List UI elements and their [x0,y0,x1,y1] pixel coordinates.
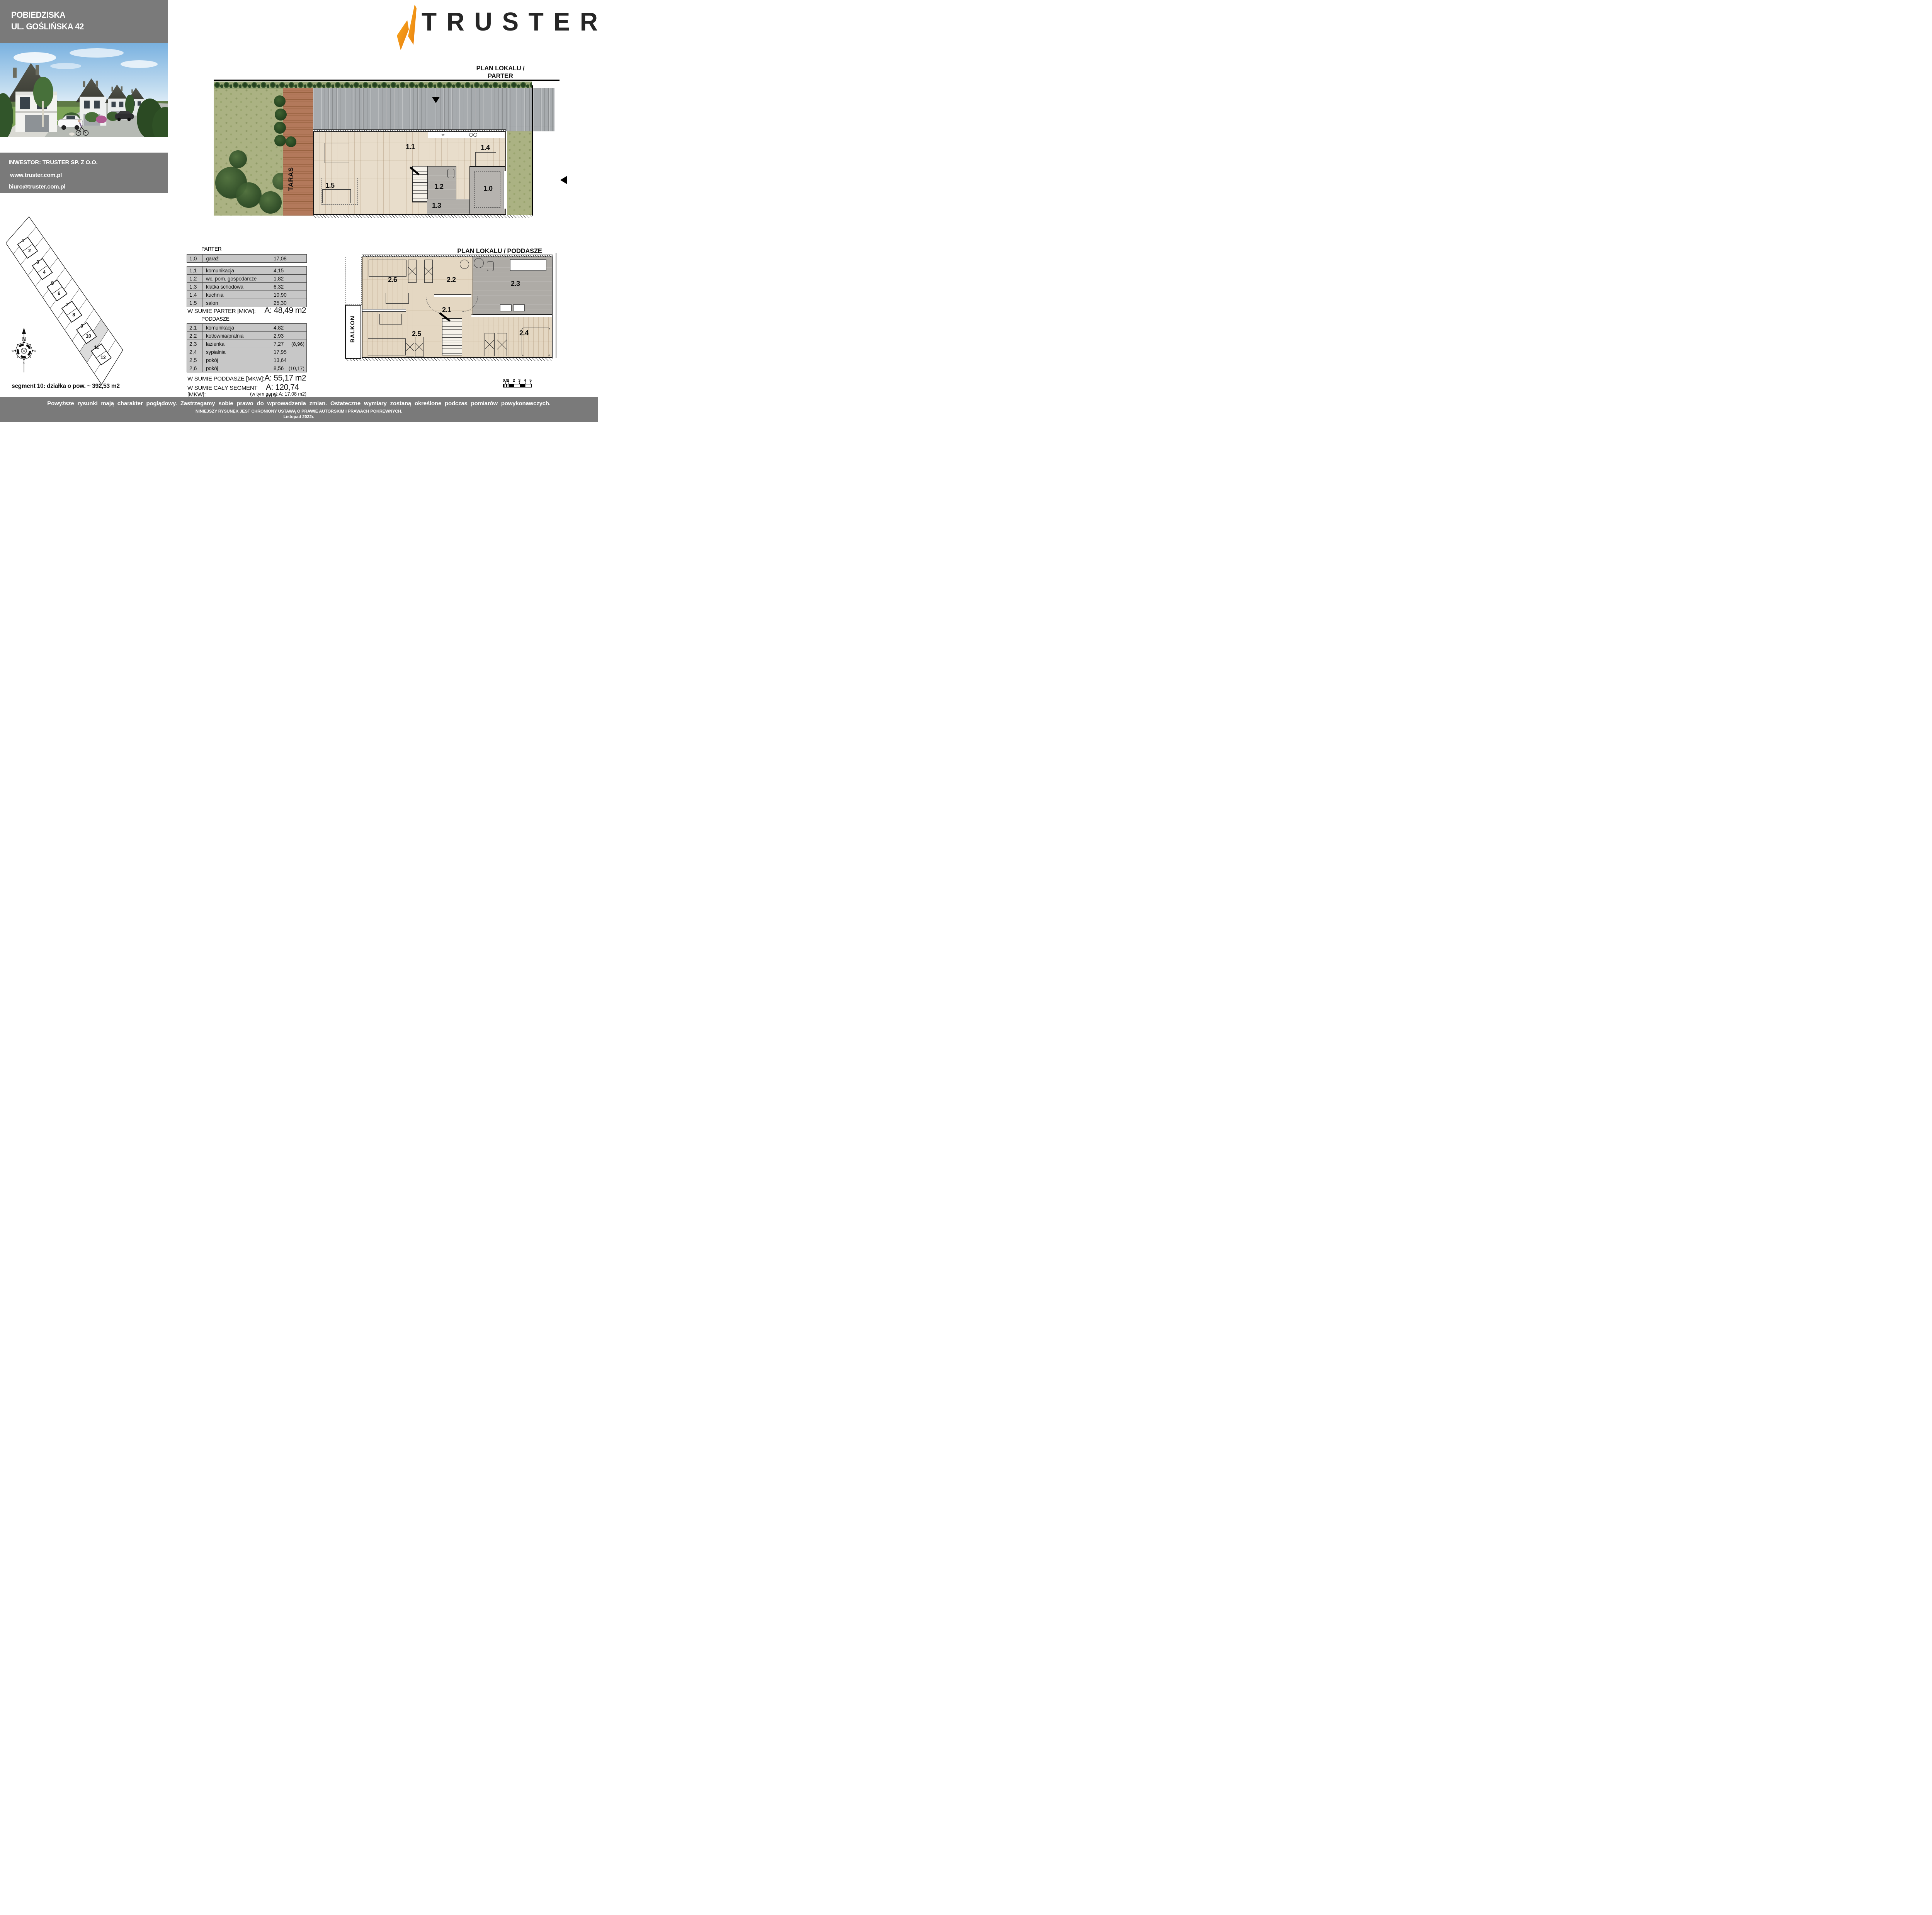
brand-letter: U [474,10,492,34]
row-label: sypialnia [202,349,270,355]
row-id: 1,1 [187,267,202,274]
table-row: 2,1komunikacja4,82 [187,324,306,332]
bathtub [510,259,546,271]
flower-bush [96,116,107,123]
row-label: salon [202,300,270,306]
plot-number: 4 [43,270,46,275]
room-label-26: 2.6 [388,276,397,284]
parter-table: 1,1komunikacja4,151,2wc, pom. gospodarcz… [187,266,307,307]
side-lawn [507,131,532,215]
scale-tick [531,382,531,384]
room-label-klatka: 1.3 [432,202,441,210]
poddasze-sum-value: A: 55,17 m2 [264,374,306,383]
tree-blob [259,191,282,214]
entrance-arrow-icon [432,97,440,103]
svg-text:W: W [12,350,14,353]
door-swing [426,296,443,313]
boundary-line [556,253,556,358]
site-plan: 123456789101112 N W E S [6,215,178,389]
table-row: 1,0garaż17,08 [187,255,306,262]
svg-text:S: S [23,362,25,364]
plan-poddasze-drawing: BALKON 2.6 2.5 2.2 2.1 [345,253,561,365]
poddasze-sum: W SUMIE PODDASZE [MKW]: A: 55,17 m2 [187,374,306,383]
row-label: łazienka [202,341,270,347]
plot-number: 11 [94,345,99,350]
row-label: wc, pom. gospodarcze [202,276,270,282]
brand-letter: T [529,10,544,34]
garage-door [503,171,507,209]
tree-blob [229,150,247,168]
plot-number: 10 [86,333,91,339]
scale-tick [525,382,526,384]
table-row: 1,1komunikacja4,15 [187,267,306,275]
row-id: 1,2 [187,275,202,282]
parter-sum: W SUMIE PARTER [MKW]: A: 48,49 m2 [187,306,306,315]
neighbour-paving [533,88,554,131]
row-id: 2,3 [187,340,202,348]
room-label-salon: 1.5 [325,182,335,190]
row-label: komunikacja [202,325,270,331]
plot-number: 3 [36,260,39,265]
compass-rose: N W E S [12,328,36,372]
parter-sum-label: W SUMIE PARTER [MKW]: [187,308,255,314]
row-id: 1,3 [187,283,202,291]
vent-icon: ✳ [441,133,445,138]
wc-room: 1.2 [427,166,456,199]
garage-room: 1.0 [469,166,505,214]
row-value: 17,95 [270,348,306,356]
scale-tick [519,382,520,384]
row-value: 10,90 [270,291,306,299]
hob-icon [469,133,478,138]
room-label-wc: 1.2 [434,183,444,191]
room-label-garaz: 1.0 [483,185,493,193]
row-label: komunikacja [202,268,270,274]
row-id: 2,6 [187,364,202,372]
row-label: kuchnia [202,292,270,298]
ground-hatch [345,358,553,361]
row-value: 1,82 [270,275,306,282]
row-id: 1,0 [187,255,202,262]
wardrobe [497,333,507,356]
toilet-icon [487,261,494,271]
row-value: 4,15 [270,267,306,274]
area-tables: PARTER 1,0garaż17,08 1,1komunikacja4,151… [187,245,307,399]
garage-table: 1,0garaż17,08 [187,254,307,263]
footer-line1: Powyższe rysunki mają charakter poglądow… [0,397,598,407]
plan-parter-drawing: TARAS ✳ 1.5 1.1 1.4 [214,80,561,219]
brand-letter: E [553,10,570,34]
partition-wall [362,309,406,312]
row-value: 8,56(10,17) [270,364,306,372]
row-value: 6,32 [270,283,306,291]
table-row: 1,2wc, pom. gospodarcze1,82 [187,275,306,283]
brochure-page: POBIEDZISKA UL. GOŚLIŃSKA 42 [0,0,598,422]
room-label-kuchnia: 1.4 [481,144,490,152]
plot-number: 7 [66,302,68,308]
house-attic-floor: 2.6 2.5 2.2 2.1 [362,257,553,358]
paving-driveway [313,88,532,131]
scale-tick [505,382,506,384]
room-label-21: 2.1 [442,306,451,314]
bed-single [369,260,406,277]
row-value: 17,08 [270,255,306,262]
svg-text:E: E [34,350,36,353]
row-label: pokój [202,365,270,371]
visualisation-scene [0,43,168,137]
desk-2 [379,314,402,325]
footer-line2: NINIEJSZY RYSUNEK JEST CHRONIONY USTAWĄ … [0,409,598,414]
plan-parter-title: PLAN LOKALU / PARTER [463,65,538,80]
bed-double [522,328,550,356]
plot-number: 8 [72,312,75,318]
brand-letter: R [447,10,464,34]
investor-panel: INWESTOR: TRUSTER SP. Z O.O. www.truster… [0,153,168,193]
table-title-poddasze: PODDASZE [201,316,230,322]
plot-number: 2 [28,248,31,253]
row-value: 4,82 [270,324,306,331]
table-row: 2,6pokój8,56(10,17) [187,364,306,372]
toilet-icon [447,169,454,178]
table-row: 1,4kuchnia10,90 [187,291,306,299]
house-ground-floor: ✳ 1.5 1.1 1.4 1.2 1.3 1.0 [313,131,506,215]
segment-note: segment 10: działka o pow. ~ 392,53 m2 [12,383,120,390]
wardrobe [424,260,433,283]
investor-email[interactable]: biuro@truster.com.pl [9,184,65,190]
parter-sum-value: A: 48,49 m2 [264,306,306,315]
bush [274,135,286,146]
investor-line: INWESTOR: TRUSTER SP. Z O.O. [9,159,98,166]
ground-hatch [313,215,532,218]
row-label: klatka schodowa [202,284,270,290]
visualisation-photo [0,43,168,137]
tree-blob [236,182,262,208]
row-value: 2,93 [270,332,306,340]
row-label: garaż [202,256,270,262]
kitchen-counter [428,132,505,138]
wardrobe [406,337,414,357]
row-id: 2,5 [187,356,202,364]
footer-line3: Listopad 2022r. [0,415,598,419]
row-id: 1,4 [187,291,202,299]
dining-table [325,143,349,163]
balcony-label: BALKON [349,316,356,343]
roof-outline-dashed [345,257,362,305]
room-label-23: 2.3 [511,280,520,288]
table-title-parter: PARTER [201,246,221,252]
table-row: 2,4sypialnia17,95 [187,348,306,356]
plot-number: 5 [51,281,54,286]
footer-disclaimer: Powyższe rysunki mają charakter poglądow… [0,397,598,422]
scale-bar: 0,512345 [503,378,534,388]
washer-icon [460,260,469,269]
poddasze-table: 2,1komunikacja4,822,2kotłownia/pralnia2,… [187,323,307,372]
dog [69,133,75,136]
row-id: 2,2 [187,332,202,340]
brand-letter: T [422,10,437,34]
room-label-komunikacja: 1.1 [406,143,415,151]
project-city: POBIEDZISKA [11,10,65,20]
plot-number: 6 [58,291,60,296]
investor-website[interactable]: www.truster.com.pl [10,172,62,178]
bush [286,136,296,147]
bush [274,95,286,107]
table-row: 1,5salon25,30 [187,299,306,307]
staircase-attic [442,318,462,355]
wardrobe [415,337,423,357]
table-row: 2,3łazienka7,27(8,96) [187,340,306,348]
header-panel: POBIEDZISKA UL. GOŚLIŃSKA 42 [0,0,168,43]
row-id: 2,1 [187,324,202,331]
table-row: 1,3klatka schodowa6,32 [187,283,306,291]
bathroom: 2.3 [473,257,552,314]
poddasze-sum-label: W SUMIE PODDASZE [MKW]: [187,376,264,382]
row-value: 13,64 [270,356,306,364]
scale-bar-segments [503,384,532,387]
garage-entry-arrow-icon [560,176,567,184]
truster-logo-icon [397,5,419,54]
terrace-label: TARAS [287,167,295,191]
room-label-22: 2.2 [447,276,456,284]
bush [274,122,286,134]
sink [513,304,525,311]
bed-single-2 [368,338,406,355]
scale-tick [508,382,509,384]
table-row: 2,5pokój13,64 [187,356,306,364]
row-value: 25,30 [270,299,306,307]
table-row: 2,2kotłownia/pralnia2,93 [187,332,306,340]
row-label: pokój [202,357,270,363]
sink [500,304,512,311]
row-id: 1,5 [187,299,202,307]
total-sum-note: (w tym garaż A: 17,08 m2) [250,391,306,397]
project-street: UL. GOŚLIŃSKA 42 [11,22,84,32]
bush [275,109,287,121]
row-value: 7,27(8,96) [270,340,306,348]
brand-letter: S [502,10,519,34]
wardrobe [485,333,495,356]
washer-icon [474,258,484,268]
row-id: 2,4 [187,348,202,356]
wardrobe [408,260,417,283]
plot-number: 9 [80,323,83,329]
row-label: kotłownia/pralnia [202,333,270,339]
plot-number: 12 [100,355,106,360]
terrace-deck [283,88,313,216]
plot-number: 1 [22,238,24,243]
scale-tick [514,382,514,384]
balcony: BALKON [345,305,361,359]
partition-wall [471,314,552,317]
desk [386,293,409,304]
brand-wordmark: TRUSTER [422,10,598,34]
brand-letter: R [580,10,598,34]
